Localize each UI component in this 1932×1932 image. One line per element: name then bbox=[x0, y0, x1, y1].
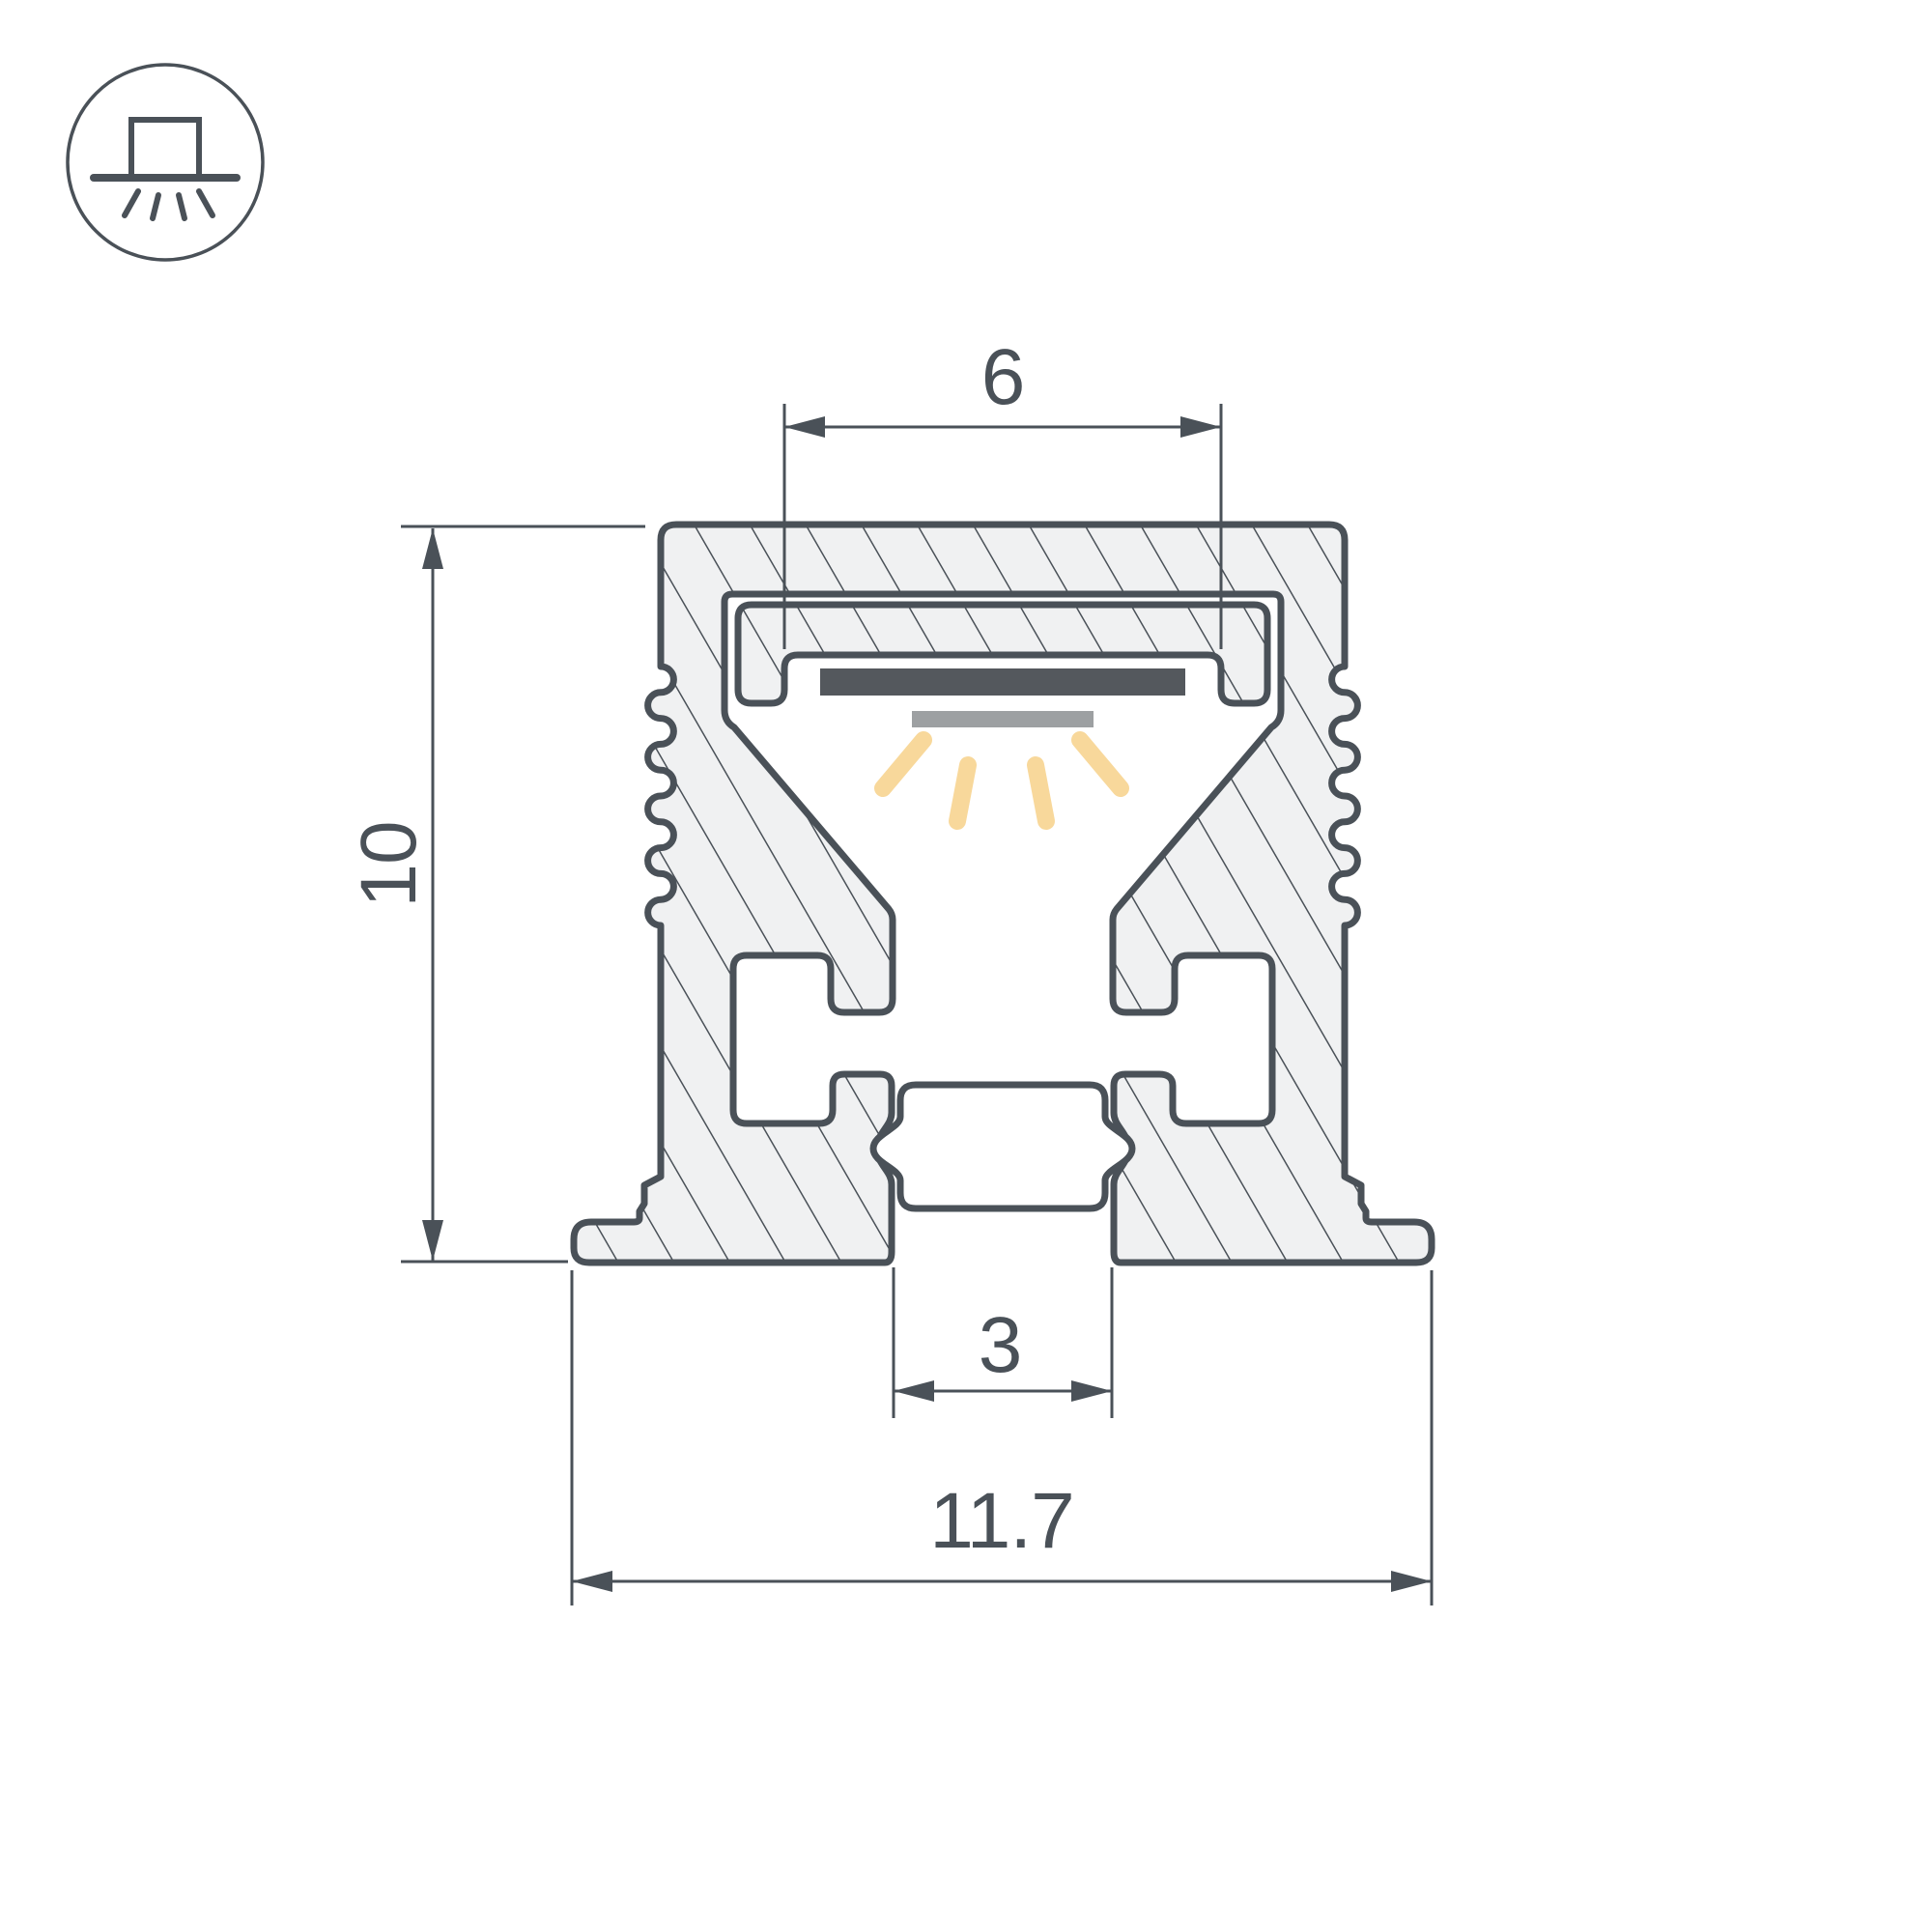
drawing-canvas: 6 10 3 11.7 bbox=[0, 0, 1932, 1932]
dimension-slot-width: 3 bbox=[894, 1267, 1112, 1418]
led-strip-bar bbox=[820, 668, 1185, 696]
led-assembly bbox=[820, 668, 1185, 821]
badge-light-rays-icon bbox=[125, 191, 213, 218]
badge-circle bbox=[68, 65, 263, 260]
diffuser-bar bbox=[912, 711, 1094, 727]
profile-drawing-svg: 6 10 3 11.7 bbox=[0, 0, 1932, 1932]
dimension-label-channel-width: 6 bbox=[981, 333, 1025, 421]
light-rays bbox=[883, 740, 1121, 821]
dimension-label-slot-width: 3 bbox=[979, 1301, 1022, 1389]
dimension-label-height: 10 bbox=[345, 821, 433, 907]
bottom-slot bbox=[873, 1085, 1132, 1208]
dimension-label-overall-width: 11.7 bbox=[929, 1477, 1074, 1565]
luminaire-box-icon bbox=[131, 120, 199, 178]
profile-body bbox=[574, 525, 1432, 1263]
dimension-height: 10 bbox=[345, 526, 645, 1262]
mount-type-badge bbox=[68, 65, 263, 260]
